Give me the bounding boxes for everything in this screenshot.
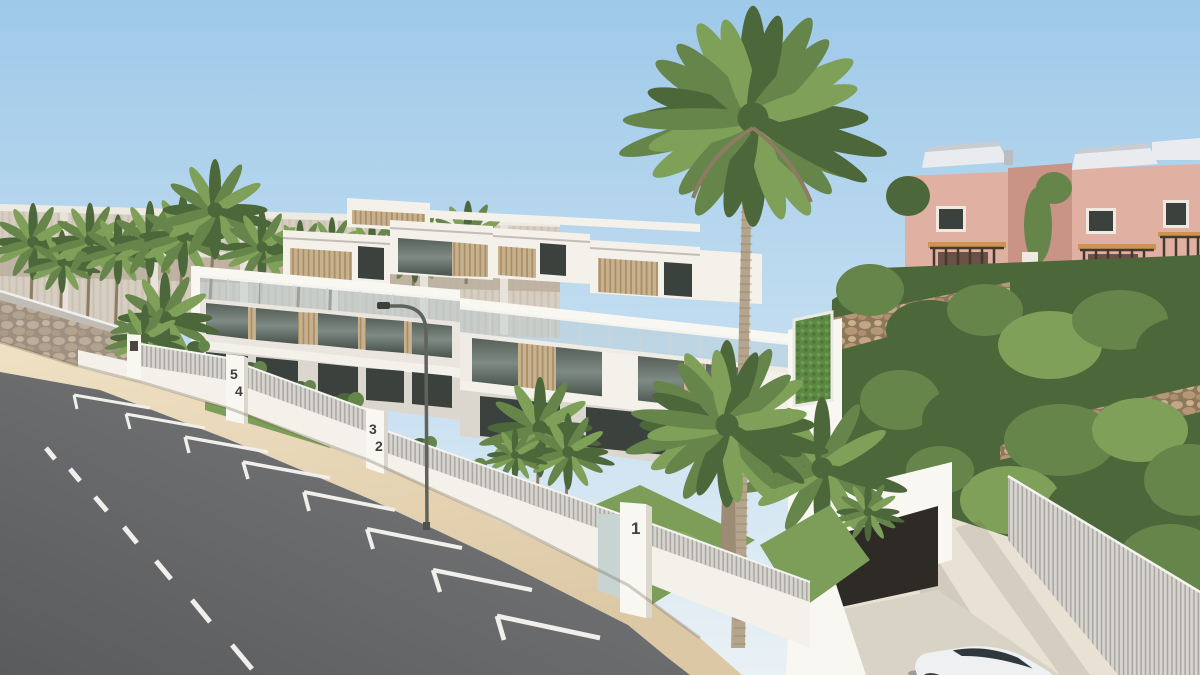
gate-glass-panel [598, 514, 620, 598]
unit-number: 5 [230, 366, 238, 382]
gate-pillar-plaque [127, 334, 141, 380]
architectural-render: 5 4 3 2 1 [0, 0, 1200, 675]
lamp-head [377, 302, 390, 309]
green-wall-panel [794, 312, 832, 406]
unit-number: 3 [369, 421, 377, 437]
unit-number: 1 [631, 519, 640, 538]
unit-number: 2 [375, 438, 383, 454]
unit-number: 4 [235, 383, 243, 399]
render-canvas: 5 4 3 2 1 [0, 0, 1200, 675]
